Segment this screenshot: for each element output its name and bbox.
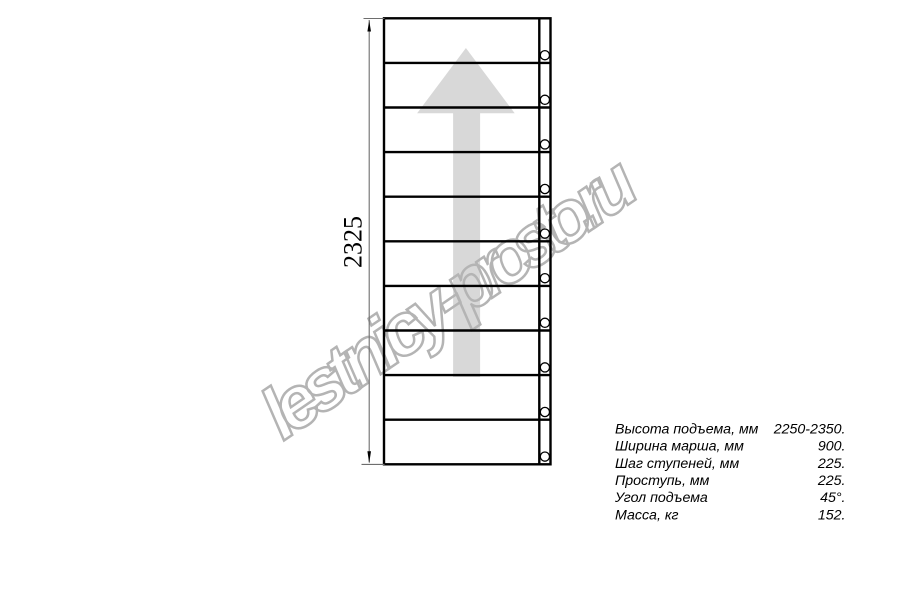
svg-text:2250-2350.: 2250-2350. [773, 421, 846, 437]
svg-text:225.: 225. [817, 456, 846, 472]
svg-text:Ширина марша, мм: Ширина марша, мм [615, 439, 744, 455]
svg-text:lestnicy-prosto.ru: lestnicy-prosto.ru [246, 141, 651, 454]
svg-text:225.: 225. [817, 473, 846, 489]
svg-text:2325: 2325 [339, 216, 368, 268]
svg-text:900.: 900. [818, 439, 846, 455]
svg-text:Высота подъема, мм: Высота подъема, мм [615, 421, 759, 437]
svg-text:Угол подъема: Угол подъема [614, 490, 708, 506]
svg-text:Шаг ступеней, мм: Шаг ступеней, мм [615, 456, 739, 472]
svg-text:152.: 152. [818, 507, 846, 523]
svg-text:Проступь, мм: Проступь, мм [615, 473, 710, 489]
svg-text:Масса, кг: Масса, кг [615, 507, 679, 523]
svg-text:45°.: 45°. [820, 490, 845, 506]
